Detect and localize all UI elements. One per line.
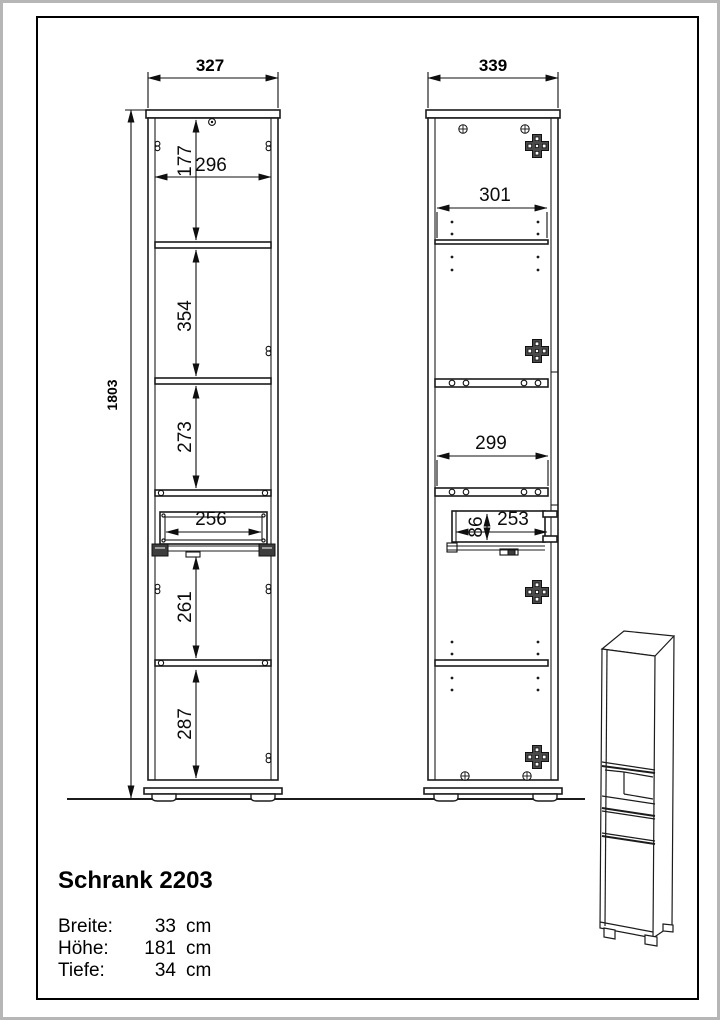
foot — [533, 794, 557, 801]
shelf — [435, 240, 548, 244]
spec-unit: cm — [176, 938, 211, 960]
shelf — [155, 378, 271, 384]
screw-icon — [459, 125, 467, 133]
foot — [152, 794, 176, 801]
dim-261: 261 — [175, 591, 196, 623]
spec-unit: cm — [176, 916, 211, 938]
drawer-slide-icon — [152, 544, 168, 556]
foot — [251, 794, 275, 801]
dim-177: 177 — [175, 145, 196, 177]
technical-drawing-page: 327 1803 177 296 354 273 256 261 287 — [0, 0, 720, 1020]
foot — [434, 794, 458, 801]
front-height-label: 1803 — [104, 379, 120, 410]
spec-unit: cm — [176, 960, 211, 982]
screw-icon — [461, 772, 469, 780]
spec-value: 33 — [134, 916, 176, 938]
dim-296: 296 — [195, 155, 227, 176]
dim-86: 86 — [466, 516, 487, 537]
screw-icon — [523, 772, 531, 780]
product-title: Schrank 2203 — [58, 867, 213, 895]
front-width-label: 327 — [196, 56, 224, 75]
side-plinth — [424, 788, 562, 794]
front-carcass — [148, 118, 278, 780]
spec-label: Höhe: — [58, 938, 134, 960]
spec-label: Breite: — [58, 916, 134, 938]
screw-icon — [521, 125, 529, 133]
dim-299: 299 — [475, 433, 507, 454]
spec-row-hoehe: Höhe: 181 cm — [58, 938, 211, 960]
spec-row-tiefe: Tiefe: 34 cm — [58, 960, 211, 982]
shelf — [155, 242, 271, 248]
iso-view — [600, 631, 674, 946]
side-view: 339 301 299 86 253 — [424, 56, 562, 801]
dim-253: 253 — [497, 509, 529, 530]
drawer-slide-icon — [259, 544, 275, 556]
front-view: 327 1803 177 296 354 273 256 261 287 — [104, 56, 282, 801]
front-top-panel — [146, 110, 280, 118]
fixed-shelf — [155, 660, 271, 666]
spec-row-breite: Breite: 33 cm — [58, 916, 211, 938]
dim-301: 301 — [479, 185, 511, 206]
spec-table: Breite: 33 cm Höhe: 181 cm Tiefe: 34 cm — [58, 916, 211, 982]
front-plinth — [144, 788, 282, 794]
dim-273: 273 — [175, 421, 196, 453]
dim-354: 354 — [175, 300, 196, 332]
spec-value: 181 — [134, 938, 176, 960]
side-top-panel — [426, 110, 560, 118]
shelf — [435, 660, 548, 666]
drawing-frame — [37, 17, 698, 999]
dim-287: 287 — [175, 708, 196, 740]
fixed-shelf — [155, 490, 271, 496]
dim-256: 256 — [195, 509, 227, 530]
spec-value: 34 — [134, 960, 176, 982]
side-width-label: 339 — [479, 56, 507, 75]
spec-label: Tiefe: — [58, 960, 134, 982]
